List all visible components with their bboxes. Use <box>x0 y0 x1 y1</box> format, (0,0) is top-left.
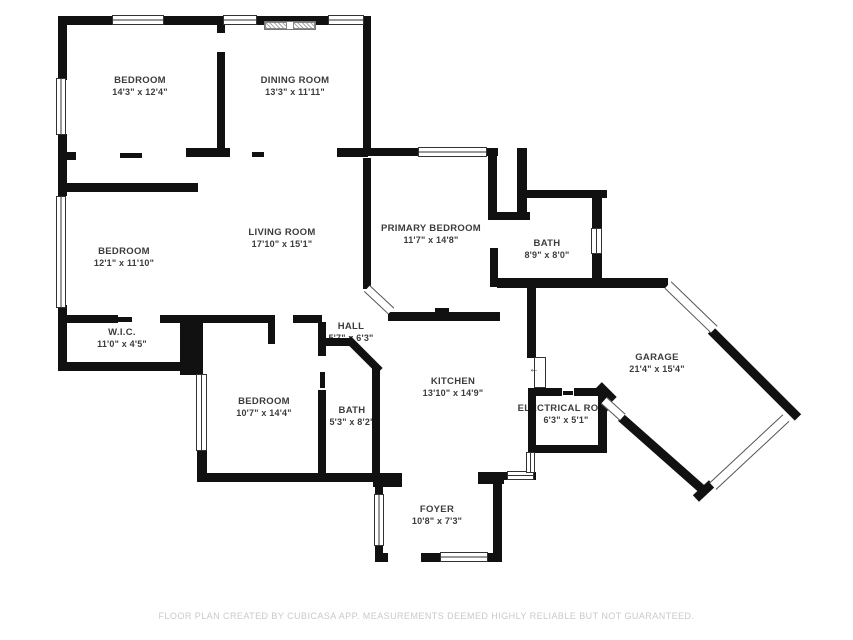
window-symbol <box>328 15 364 25</box>
room-name: DINING ROOM <box>261 75 330 87</box>
room-name: KITCHEN <box>423 376 484 388</box>
fixture-hatch <box>265 22 287 29</box>
room-label-wic: W.I.C.11'0" x 4'5" <box>97 327 147 351</box>
room-dims: 10'8" x 7'3" <box>412 516 462 528</box>
room-dims: 5'3" x 8'2" <box>329 417 374 429</box>
wall-segment <box>318 322 326 356</box>
wall-segment-diagonal <box>618 414 709 496</box>
room-dims: 21'4" x 15'4" <box>629 364 684 376</box>
room-label-primary-bedroom: PRIMARY BEDROOM11'7" x 14'8" <box>381 223 481 247</box>
wall-segment <box>116 317 132 322</box>
wall-segment <box>320 372 325 388</box>
wall-segment <box>252 152 264 157</box>
door-opening <box>364 285 394 314</box>
wall-segment <box>493 473 502 562</box>
room-dims: 10'7" x 14'4" <box>236 408 291 420</box>
wall-segment-diagonal <box>708 327 801 420</box>
room-label-garage: GARAGE21'4" x 15'4" <box>629 352 684 376</box>
wall-segment <box>592 190 602 229</box>
wall-segment <box>58 315 118 323</box>
wall-segment <box>375 545 383 562</box>
door-swing-arrow-icon: ← <box>529 365 539 375</box>
room-name: LIVING ROOM <box>248 227 315 239</box>
wall-segment <box>363 158 371 289</box>
room-dims: 11'7" x 14'8" <box>381 235 481 247</box>
door-opening <box>665 281 718 333</box>
wall-segment <box>198 473 382 482</box>
window-symbol <box>112 15 164 25</box>
wall-segment <box>528 445 607 453</box>
window-symbol <box>440 552 488 562</box>
room-name: W.I.C. <box>97 327 147 339</box>
wall-segment <box>58 16 371 25</box>
window-symbol <box>526 452 535 473</box>
disclaimer-text: FLOOR PLAN CREATED BY CUBICASA APP. MEAS… <box>0 611 853 621</box>
room-label-dining-room: DINING ROOM13'3" x 11'11" <box>261 75 330 99</box>
wall-segment <box>366 148 420 156</box>
wall-segment <box>517 148 527 220</box>
wall-segment <box>592 253 602 285</box>
room-name: GARAGE <box>629 352 684 364</box>
floor-plan: BEDROOM14'3" x 12'4" DINING ROOM13'3" x … <box>0 0 853 640</box>
wall-segment <box>435 308 449 313</box>
wall-segment <box>203 315 275 323</box>
wall-segment <box>421 553 441 562</box>
wall-segment <box>372 366 380 473</box>
wall-segment <box>497 278 668 288</box>
room-name: PRIMARY BEDROOM <box>381 223 481 235</box>
window-symbol <box>418 147 487 157</box>
wall-segment <box>217 52 225 150</box>
room-dims: 14'3" x 12'4" <box>112 87 167 99</box>
wall-segment <box>490 248 498 287</box>
fixture-hatch <box>293 22 315 29</box>
window-symbol <box>374 494 384 546</box>
wall-segment <box>120 153 142 158</box>
wall-segment <box>180 315 203 375</box>
window-symbol <box>56 78 66 135</box>
room-name: BEDROOM <box>236 396 291 408</box>
window-symbol <box>196 374 207 451</box>
room-name: BATH <box>329 405 374 417</box>
room-label-bath-right: BATH8'9" x 8'0" <box>524 238 569 262</box>
room-label-kitchen: KITCHEN13'10" x 14'9" <box>423 376 484 400</box>
wall-segment <box>197 449 207 482</box>
wall-segment <box>58 305 67 371</box>
room-dims: 13'3" x 11'11" <box>261 87 330 99</box>
room-dims: 13'10" x 14'9" <box>423 388 484 400</box>
wall-segment <box>488 155 497 220</box>
wall-segment <box>58 16 67 80</box>
sideboard-fixture <box>264 21 316 30</box>
room-label-living-room: LIVING ROOM17'10" x 15'1" <box>248 227 315 251</box>
wall-segment <box>58 134 67 196</box>
wall-segment <box>563 391 573 395</box>
room-label-bedroom-left: BEDROOM12'1" x 11'10" <box>94 246 154 270</box>
wall-segment <box>268 322 275 344</box>
room-label-bath-bottom: BATH5'3" x 8'2" <box>329 405 374 429</box>
room-label-bedroom-top: BEDROOM14'3" x 12'4" <box>112 75 167 99</box>
wall-segment <box>388 312 500 321</box>
wall-segment <box>58 362 182 371</box>
wall-segment <box>318 390 326 482</box>
room-dims: 17'10" x 15'1" <box>248 239 315 251</box>
room-dims: 8'9" x 8'0" <box>524 250 569 262</box>
room-dims: 12'1" x 11'10" <box>94 258 154 270</box>
wall-segment <box>527 287 536 358</box>
room-name: BEDROOM <box>94 246 154 258</box>
wall-segment <box>58 183 198 192</box>
room-name: BEDROOM <box>112 75 167 87</box>
wall-segment <box>363 16 371 150</box>
room-name: FOYER <box>412 504 462 516</box>
room-dims: 11'0" x 4'5" <box>97 339 147 351</box>
room-label-foyer: FOYER10'8" x 7'3" <box>412 504 462 528</box>
window-symbol <box>591 228 602 254</box>
room-label-bedroom-bottom: BEDROOM10'7" x 14'4" <box>236 396 291 420</box>
room-name: HALL <box>328 321 373 333</box>
door-opening <box>709 414 789 490</box>
wall-segment <box>528 388 536 453</box>
room-name: BATH <box>524 238 569 250</box>
window-symbol <box>56 196 66 308</box>
window-symbol <box>223 15 257 25</box>
